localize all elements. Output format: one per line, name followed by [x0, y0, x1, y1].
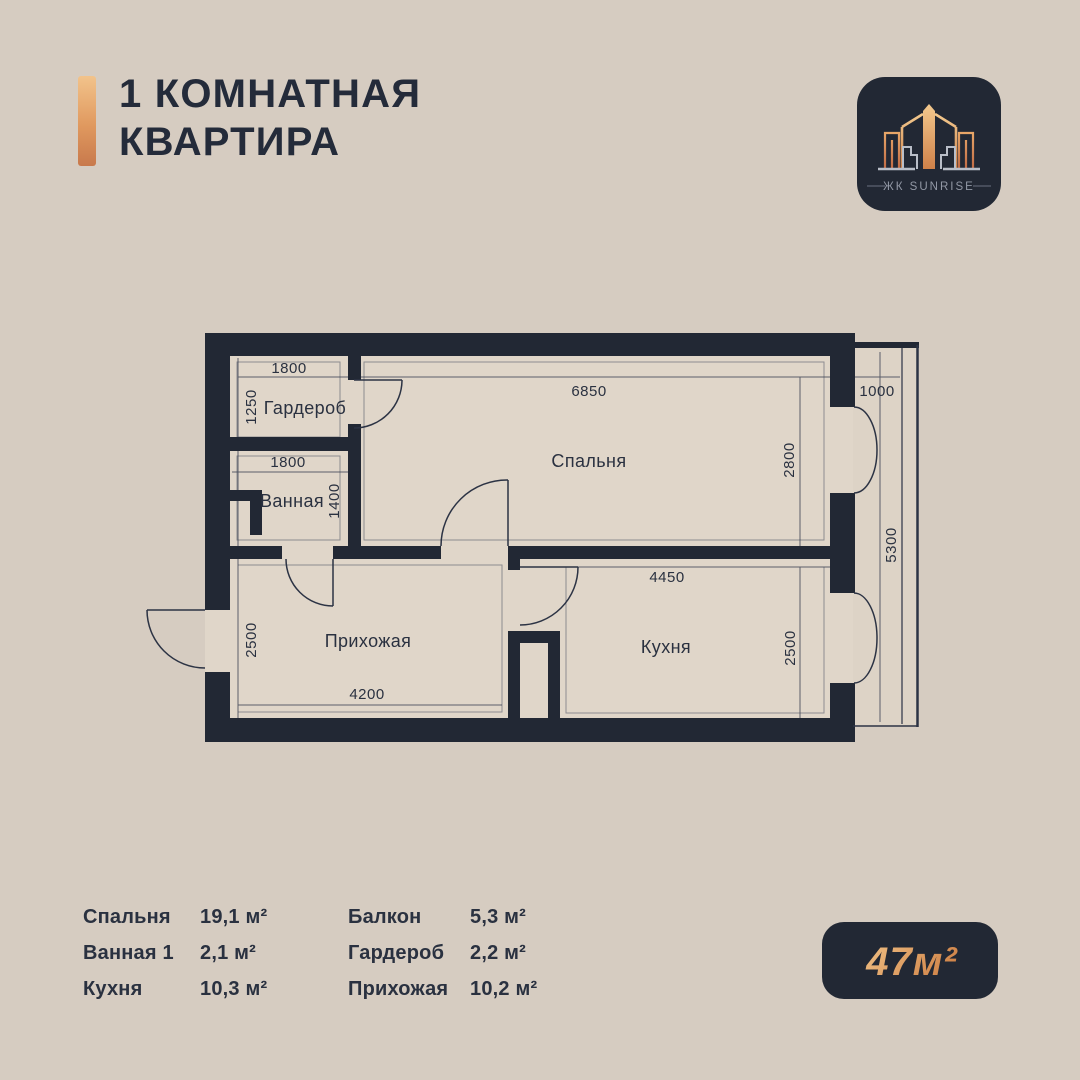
dim-bedroom-depth: 2800 — [781, 442, 798, 477]
dim-hallway-depth: 2500 — [243, 622, 260, 657]
legend-label: Прихожая — [348, 978, 470, 1001]
legend-value: 5,3 м² — [470, 906, 526, 929]
legend-row: Балкон 5,3 м² — [348, 906, 537, 928]
door-arc-entrance — [147, 610, 205, 668]
legend-row: Гардероб 2,2 м² — [348, 942, 537, 964]
total-area-value: 47м² — [865, 940, 958, 984]
room-label-bathroom: Ванная — [260, 491, 324, 511]
room-label-wardrobe: Гардероб — [264, 398, 346, 418]
total-area-badge: 47м² — [822, 922, 998, 999]
legend-column-1: Спальня 19,1 м² Ванная 1 2,1 м² Кухня 10… — [83, 906, 267, 1014]
legend-value: 10,3 м² — [200, 978, 267, 1001]
dim-wardrobe-depth: 1250 — [243, 389, 260, 424]
dim-wardrobe-width: 1800 — [271, 360, 306, 377]
room-label-hallway: Прихожая — [325, 631, 412, 651]
dim-bathroom-depth: 1400 — [326, 483, 343, 518]
dim-balcony-length: 5300 — [883, 527, 900, 562]
room-label-bedroom: Спальня — [551, 451, 626, 471]
legend-value: 2,2 м² — [470, 942, 526, 965]
legend-row: Ванная 1 2,1 м² — [83, 942, 267, 964]
dim-bedroom-width: 6850 — [571, 383, 606, 400]
dim-kitchen-depth: 2500 — [782, 630, 799, 665]
total-area-text-svg: 47м² — [822, 922, 998, 999]
dim-kitchen-width: 4450 — [649, 569, 684, 586]
dim-hallway-width: 4200 — [349, 686, 384, 703]
legend-label: Спальня — [83, 906, 200, 929]
legend-value: 19,1 м² — [200, 906, 267, 929]
legend-column-2: Балкон 5,3 м² Гардероб 2,2 м² Прихожая 1… — [348, 906, 537, 1014]
legend-label: Кухня — [83, 978, 200, 1001]
poster-canvas: 1 КОМНАТНАЯ КВАРТИРА — [0, 0, 1080, 1080]
legend-row: Спальня 19,1 м² — [83, 906, 267, 928]
floor-fill — [205, 333, 919, 742]
legend-value: 10,2 м² — [470, 978, 537, 1001]
legend-label: Ванная 1 — [83, 942, 200, 965]
legend-row: Кухня 10,3 м² — [83, 978, 267, 1000]
legend-label: Балкон — [348, 906, 470, 929]
room-label-kitchen: Кухня — [641, 637, 691, 657]
legend-value: 2,1 м² — [200, 942, 256, 965]
legend-row: Прихожая 10,2 м² — [348, 978, 537, 1000]
legend-label: Гардероб — [348, 942, 470, 965]
dim-balcony-width: 1000 — [859, 383, 894, 400]
dim-bathroom-width: 1800 — [270, 454, 305, 471]
